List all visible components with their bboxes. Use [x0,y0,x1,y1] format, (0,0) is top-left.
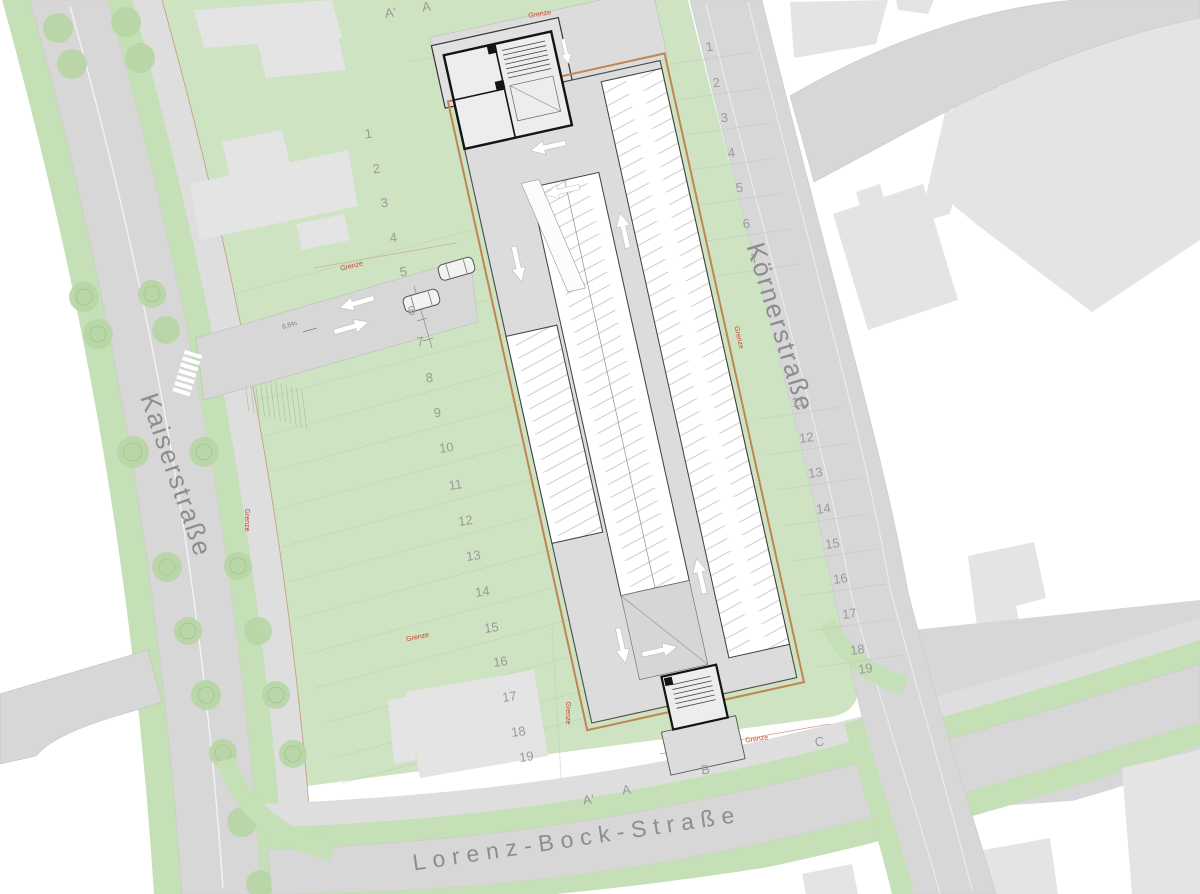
section-marker-a-prime-top: A' [384,4,397,20]
grenze-label: Grenze [243,509,250,532]
tree-icon [83,319,113,349]
svg-text:12: 12 [457,512,473,529]
svg-text:14: 14 [474,583,490,600]
svg-text:18: 18 [849,641,865,658]
tree-icon [138,280,166,308]
tree-icon [189,437,219,467]
tree-icon [111,7,141,37]
tree-icon [191,680,221,710]
tree-icon [174,617,202,645]
svg-text:16: 16 [492,653,508,670]
grenze-label: Grenze [564,702,571,725]
svg-text:19: 19 [518,748,534,765]
svg-text:13: 13 [465,547,481,564]
svg-text:13: 13 [807,464,823,481]
tree-icon [224,552,252,580]
tree-icon [152,316,180,344]
tree-icon [125,43,155,73]
svg-text:11: 11 [791,393,806,410]
stair-core-south [661,665,727,730]
tree-icon [43,13,73,43]
tree-icon [152,552,182,582]
tree-icon [262,681,290,709]
tree-icon [279,740,307,768]
svg-text:16: 16 [832,570,848,587]
svg-text:11: 11 [448,476,463,493]
svg-text:17: 17 [841,605,857,622]
svg-text:14: 14 [815,500,831,517]
svg-text:15: 15 [824,535,840,552]
tree-icon [69,282,99,312]
building [1122,750,1200,894]
building [790,0,888,58]
tree-icon [244,617,272,645]
site-plan: Kaiserstraße Körnerstraße Lorenz-Bock-St… [0,0,1200,894]
tree-icon [117,436,149,468]
svg-text:15: 15 [483,619,499,636]
svg-text:18: 18 [510,723,526,740]
section-marker-a-prime-bottom: A' [582,791,595,807]
svg-text:17: 17 [501,688,517,705]
svg-text:19: 19 [857,660,873,677]
tree-icon [57,49,87,79]
building [896,0,934,14]
svg-text:12: 12 [798,429,814,446]
site-plan-page: Kaiserstraße Körnerstraße Lorenz-Bock-St… [0,0,1200,894]
svg-text:10: 10 [438,439,454,456]
